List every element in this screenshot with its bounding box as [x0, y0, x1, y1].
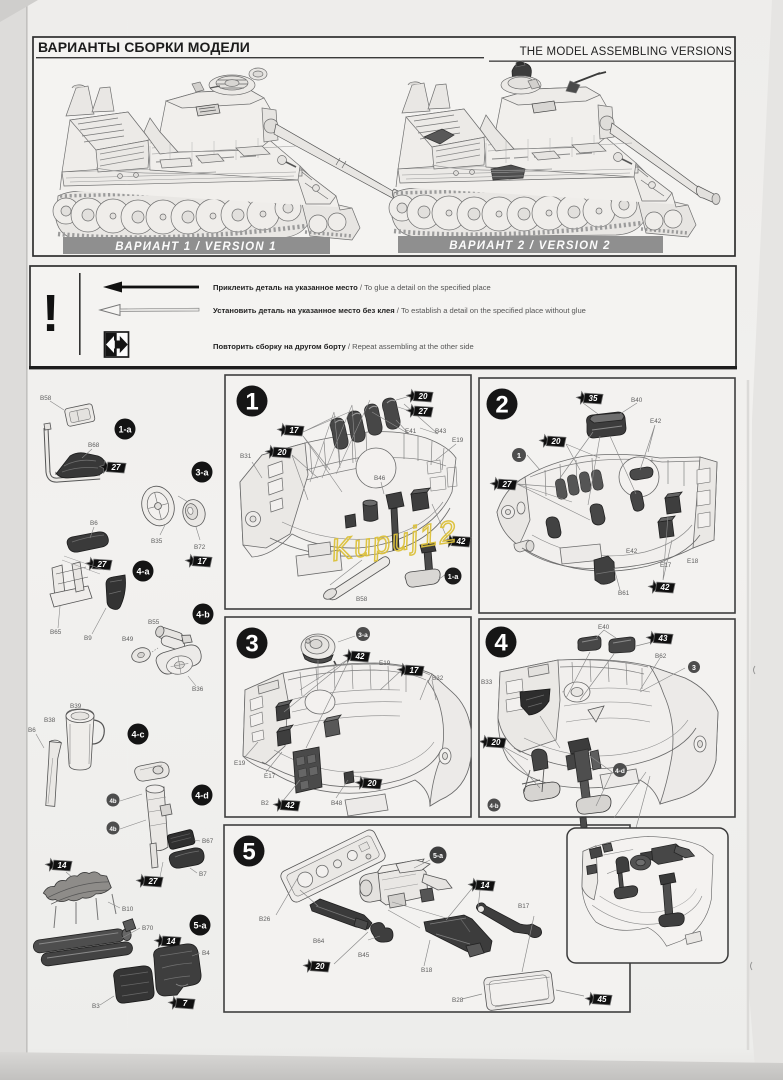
svg-text:B58: B58 [356, 596, 368, 603]
svg-text:B70: B70 [142, 925, 154, 932]
svg-text:14: 14 [481, 881, 490, 890]
svg-text:14: 14 [167, 937, 176, 946]
svg-text:B2: B2 [261, 800, 269, 807]
svg-text:4-d: 4-d [615, 768, 625, 775]
svg-text:B46: B46 [374, 475, 386, 482]
svg-text:27: 27 [97, 560, 107, 569]
svg-text:THE MODEL ASSEMBLING VERSIONS: THE MODEL ASSEMBLING VERSIONS [520, 46, 733, 58]
svg-text:E17: E17 [660, 562, 672, 569]
svg-text:14: 14 [58, 861, 67, 870]
svg-text:3: 3 [692, 665, 696, 672]
svg-text:1: 1 [245, 389, 258, 416]
svg-text:42: 42 [660, 583, 670, 592]
svg-text:B3: B3 [92, 1003, 100, 1010]
svg-text:3: 3 [245, 631, 258, 658]
svg-text:B28: B28 [452, 997, 464, 1004]
svg-text:20: 20 [418, 392, 428, 401]
svg-text:42: 42 [285, 801, 295, 810]
svg-text:B55: B55 [148, 619, 160, 626]
svg-text:B6: B6 [28, 727, 36, 734]
svg-text:B45: B45 [358, 952, 370, 959]
svg-text:4-b: 4-b [196, 610, 210, 620]
svg-text:4-b: 4-b [490, 804, 499, 810]
svg-text:B32: B32 [432, 675, 444, 682]
svg-text:B35: B35 [151, 538, 163, 545]
svg-text:E19: E19 [379, 660, 391, 667]
svg-text:3-a: 3-a [358, 632, 368, 639]
svg-text:1-a: 1-a [118, 425, 132, 435]
svg-text:5: 5 [242, 839, 255, 866]
svg-text:43: 43 [658, 634, 668, 643]
svg-text:B65: B65 [50, 629, 62, 636]
svg-text:B18: B18 [421, 967, 433, 974]
svg-text:B7: B7 [199, 871, 207, 878]
svg-text:E41: E41 [405, 428, 417, 435]
svg-text:B68: B68 [88, 442, 100, 449]
svg-text:B4: B4 [202, 950, 210, 957]
svg-text:B33: B33 [481, 679, 493, 686]
svg-text:4-d: 4-d [195, 791, 209, 801]
svg-text:B61: B61 [618, 590, 630, 597]
svg-text:17: 17 [198, 557, 207, 566]
svg-text:B31: B31 [240, 453, 252, 460]
svg-text:B39: B39 [70, 703, 82, 710]
svg-text:Приклеить деталь на указанное: Приклеить деталь на указанное место / To… [213, 283, 491, 292]
svg-text:B43: B43 [435, 428, 447, 435]
svg-text:27: 27 [148, 877, 158, 886]
svg-text:20: 20 [551, 437, 561, 446]
svg-text:B72: B72 [194, 544, 206, 551]
svg-text:3-a: 3-a [195, 468, 209, 478]
svg-text:E40: E40 [598, 624, 610, 631]
svg-text:2: 2 [495, 392, 508, 419]
svg-text:20: 20 [315, 962, 325, 971]
svg-text:4b: 4b [109, 799, 116, 805]
svg-text:1-a: 1-a [448, 572, 460, 581]
svg-text:ВАРИАНТ 2 / VERSION 2: ВАРИАНТ 2 / VERSION 2 [449, 240, 610, 252]
svg-text:Установить деталь на указанное: Установить деталь на указанное место без… [213, 306, 586, 315]
svg-text:B49: B49 [122, 636, 134, 643]
svg-text:B62: B62 [655, 653, 667, 660]
svg-text:B40: B40 [631, 397, 643, 404]
svg-text:E19: E19 [234, 760, 246, 767]
svg-text:B9: B9 [84, 635, 92, 642]
svg-text:B36: B36 [192, 686, 204, 693]
svg-text:B38: B38 [44, 717, 56, 724]
svg-text:E42: E42 [650, 418, 662, 425]
svg-text:B64: B64 [313, 938, 325, 945]
svg-text:4-c: 4-c [131, 730, 144, 740]
svg-text:1: 1 [517, 451, 521, 460]
svg-text:27: 27 [418, 407, 428, 416]
svg-text:B58: B58 [40, 395, 52, 402]
svg-text:20: 20 [491, 738, 501, 747]
svg-text:7: 7 [183, 999, 188, 1008]
svg-text:5-a: 5-a [193, 921, 207, 931]
svg-text:B48: B48 [331, 800, 343, 807]
svg-text:E18: E18 [687, 558, 699, 565]
svg-text:Повторить сборку на другом бор: Повторить сборку на другом борту / Repea… [213, 342, 474, 351]
svg-text:27: 27 [111, 463, 121, 472]
svg-text:20: 20 [277, 448, 287, 457]
svg-text:B17: B17 [518, 903, 530, 910]
svg-text:B10: B10 [122, 906, 134, 913]
svg-text:20: 20 [367, 779, 377, 788]
svg-text:B67: B67 [202, 838, 214, 845]
svg-text:17: 17 [410, 666, 419, 675]
svg-text:27: 27 [502, 480, 512, 489]
svg-text:45: 45 [597, 995, 607, 1004]
svg-text:B26: B26 [259, 916, 271, 923]
svg-text:ВАРИАНТ 1 / VERSION 1: ВАРИАНТ 1 / VERSION 1 [115, 241, 276, 253]
svg-text:35: 35 [589, 394, 598, 403]
svg-text:17: 17 [290, 426, 299, 435]
svg-text:ВАРИАНТЫ СБОРКИ МОДЕЛИ: ВАРИАНТЫ СБОРКИ МОДЕЛИ [38, 39, 250, 55]
svg-text:4-a: 4-a [136, 567, 150, 577]
svg-text:E42: E42 [626, 548, 638, 555]
svg-text:B6: B6 [90, 520, 98, 527]
svg-text:4: 4 [494, 630, 508, 657]
svg-text:4b: 4b [109, 827, 116, 833]
svg-text:42: 42 [355, 652, 365, 661]
svg-text:E19: E19 [452, 437, 464, 444]
svg-text:5-a: 5-a [433, 853, 443, 860]
svg-text:!: ! [42, 285, 59, 343]
svg-text:E17: E17 [264, 773, 276, 780]
